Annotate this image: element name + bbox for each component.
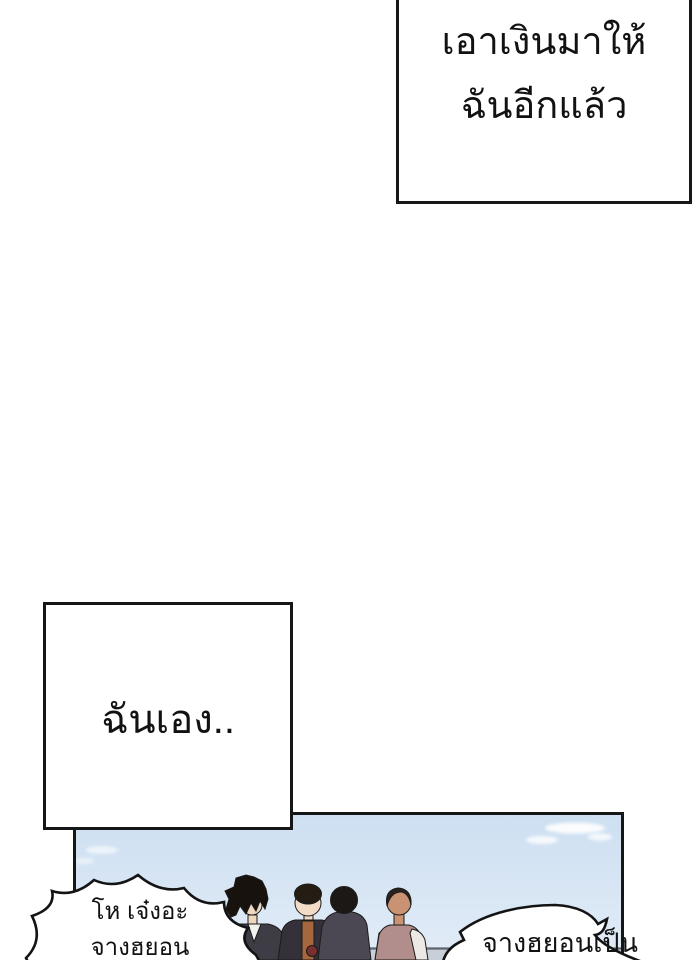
narration-line: ฉันอีกแล้ว [399,74,689,138]
cloud [526,836,558,844]
narration-line: ฉันเอง.. [101,687,235,751]
narration-box-middle: ฉันเอง.. [43,602,293,830]
webtoon-page: เอาเงินมาให้ ฉันอีกแล้ว [0,0,700,960]
cloud-bubble-text: จางฮยอนเป็น [468,927,652,959]
bubble-line: จางฮยอน [55,930,225,960]
burst-bubble-text: โห เจ๋งอะ จางฮยอน [55,894,225,960]
held-item [307,946,318,957]
narration-text: ฉันเอง.. [101,681,235,751]
narration-box-top: เอาเงินมาให้ ฉันอีกแล้ว [396,0,692,204]
coat-back [318,912,371,960]
cloud [588,834,612,841]
bubble-line: โห เจ๋งอะ [55,894,225,930]
head-back [331,887,358,914]
narration-text: เอาเงินมาให้ ฉันอีกแล้ว [399,10,689,138]
cloud [545,823,605,834]
bubble-line: จางฮยอนเป็น [468,927,652,959]
bowl-hair [295,884,322,904]
cloud [86,846,118,854]
narration-line: เอาเงินมาให้ [399,10,689,74]
